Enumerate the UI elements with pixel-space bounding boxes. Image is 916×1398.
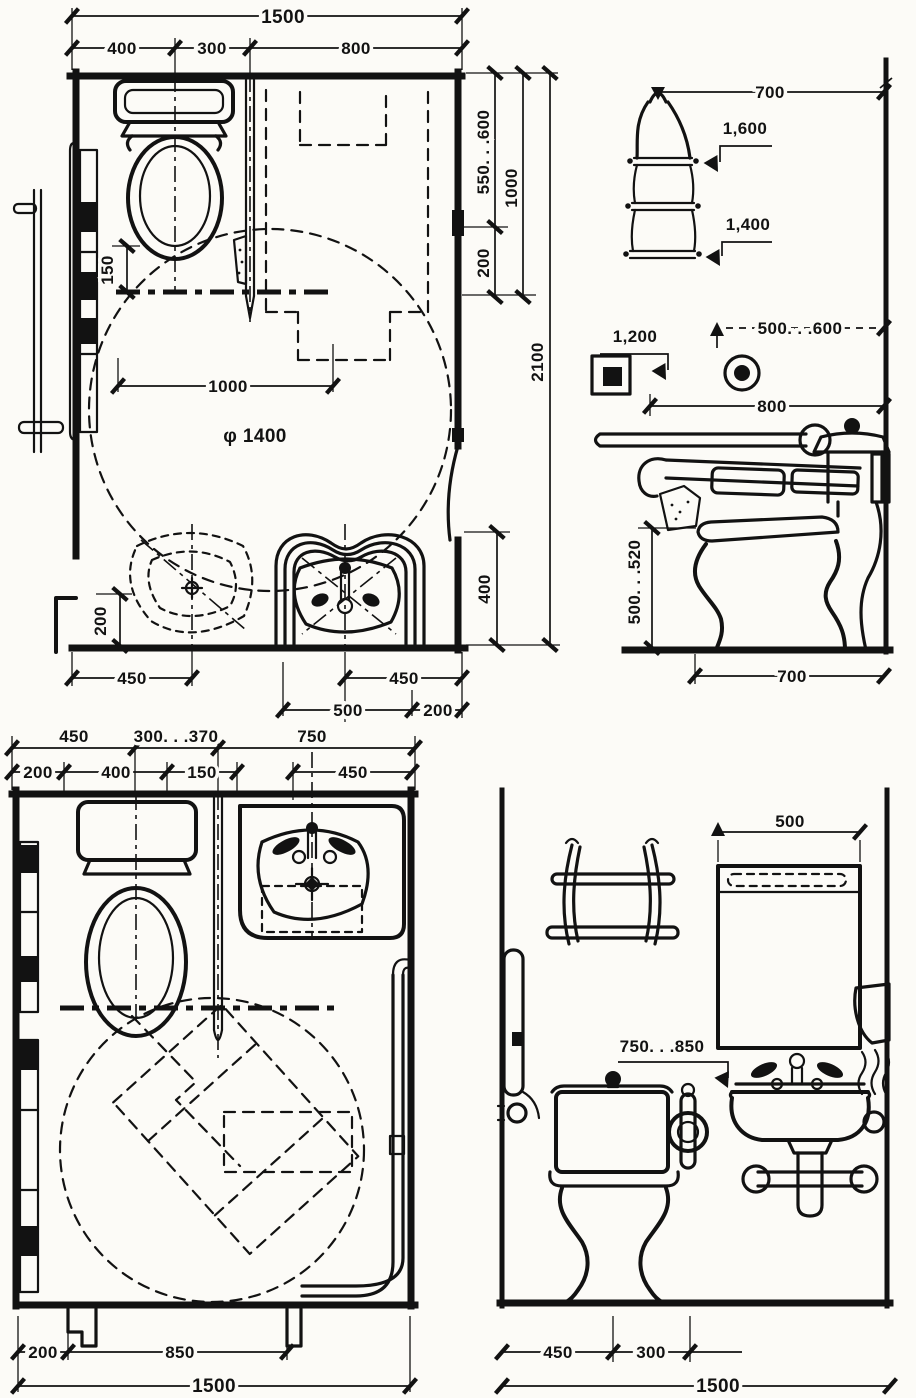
dim-label-200-row2: 200: [23, 763, 53, 782]
dim-label-750-850: 750. . .850: [620, 1037, 705, 1056]
dim-label-1500-elev: 1500: [696, 1376, 740, 1397]
dim-label-1200: 1,200: [613, 327, 658, 346]
dashed-recess: [266, 90, 428, 360]
toilet-elevation: [550, 1071, 679, 1302]
door-leaf: [448, 446, 458, 540]
wall-grab-bars: [14, 143, 97, 452]
shelf-unit: [623, 93, 702, 258]
plan-corner-wc: 1500 400 300 800 150 1000 φ 1400 200: [14, 7, 560, 722]
dim-label-1000-side: 1000: [502, 168, 521, 207]
washbasin-with-rails: [276, 524, 424, 648]
dim-label-450-row2: 450: [338, 763, 368, 782]
plan-b-top-dimensions: 450 300. . .370 750 200 400 150 450: [12, 727, 415, 800]
wall-shelf: [547, 839, 678, 944]
dim-label-1500: 1500: [261, 7, 305, 28]
socket-symbol: [725, 356, 759, 390]
dim-label-300-370: 300. . .370: [134, 727, 219, 746]
dim-label-550-600: 550. . .600: [474, 110, 493, 195]
technical-drawing: 1500 400 300 800 150 1000 φ 1400 200: [0, 0, 916, 1398]
dim-label-450-elev: 450: [543, 1343, 573, 1362]
dim-label-200-edge: 200: [423, 701, 453, 720]
elevation-toilet-wall: 700 1,600 1,400 1,200 500. . .600 800 50…: [592, 60, 892, 686]
toilet-plan: [115, 76, 233, 292]
dim-label-750: 750: [297, 727, 327, 746]
dim-label-400-row2: 400: [101, 763, 131, 782]
label-turning-circle-diameter: φ 1400: [223, 426, 287, 447]
dim-label-200-step: 200: [91, 606, 110, 636]
dim-label-300: 300: [197, 39, 227, 58]
dim-label-500-mirror: 500: [775, 812, 805, 831]
dim-label-800: 800: [341, 39, 371, 58]
dim-label-150-row2: 150: [187, 763, 217, 782]
toilet-paper-holder: [669, 1084, 707, 1168]
support-pipe: [234, 76, 254, 322]
plan-wc-with-basin: 450 300. . .370 750 200 400 150 450: [12, 727, 415, 1397]
dim-label-400-side: 400: [475, 574, 494, 604]
lamp-strip: [728, 874, 846, 886]
toilet-side-view: [639, 418, 889, 650]
door-knob-left: [508, 1104, 526, 1122]
dim-label-500-520: 500. . .520: [625, 540, 644, 625]
left-wall-grab-bars: [20, 842, 38, 1292]
basin-grab-bar: [758, 1172, 862, 1186]
horizontal-grab-bar: [596, 425, 831, 455]
dim-label-500: 500: [333, 701, 363, 720]
dim-label-800: 800: [757, 397, 787, 416]
dim-label-200-side: 200: [474, 248, 493, 278]
dim-label-850: 850: [165, 1343, 195, 1362]
dim-label-200-bottom: 200: [28, 1343, 58, 1362]
plan-b-bottom-dimensions: 200 850 1500: [18, 1316, 410, 1397]
turning-circle: [60, 998, 364, 1302]
support-pipe: [214, 794, 222, 1058]
washbasin-elevation: [731, 1054, 878, 1216]
elevation-toilet-basin-wall: 500 750. . .850 450 300 1500: [498, 790, 890, 1397]
drawing-sheet-accessible-wc: 1500 400 300 800 150 1000 φ 1400 200: [0, 0, 916, 1398]
door-jamb-right: [287, 1309, 301, 1346]
wheelchair-dashed: [113, 1005, 358, 1254]
air-flow-lines: [859, 1050, 890, 1094]
elevation-a-dimensions: 700 1,600 1,400 1,200 500. . .600 800 50…: [600, 83, 884, 686]
dim-label-450-left: 450: [117, 669, 147, 688]
switch-symbol: [592, 356, 630, 394]
dim-label-500-600: 500. . .600: [758, 319, 843, 338]
dim-label-450-right: 450: [389, 669, 419, 688]
door-jamb-left: [68, 1309, 96, 1346]
dim-label-300-elev: 300: [636, 1343, 666, 1362]
dim-label-450-row1: 450: [59, 727, 89, 746]
dim-label-400: 400: [107, 39, 137, 58]
dim-label-1600: 1,600: [723, 119, 768, 138]
dim-label-2100: 2100: [528, 342, 547, 381]
dim-label-1500-bottom: 1500: [192, 1376, 236, 1397]
dim-label-1400: 1,400: [726, 215, 771, 234]
mirror-with-lamp: [718, 866, 860, 1048]
folded-bar-side-view: [34, 190, 41, 452]
dim-label-700-top: 700: [755, 83, 785, 102]
dim-label-150: 150: [98, 255, 117, 285]
toilet-plan: [78, 794, 196, 1036]
toilet-paper-roll: [660, 486, 700, 530]
dim-label-1000: 1000: [208, 377, 247, 396]
dim-label-700-bottom: 700: [777, 667, 807, 686]
washbasin-plan: [240, 752, 404, 940]
